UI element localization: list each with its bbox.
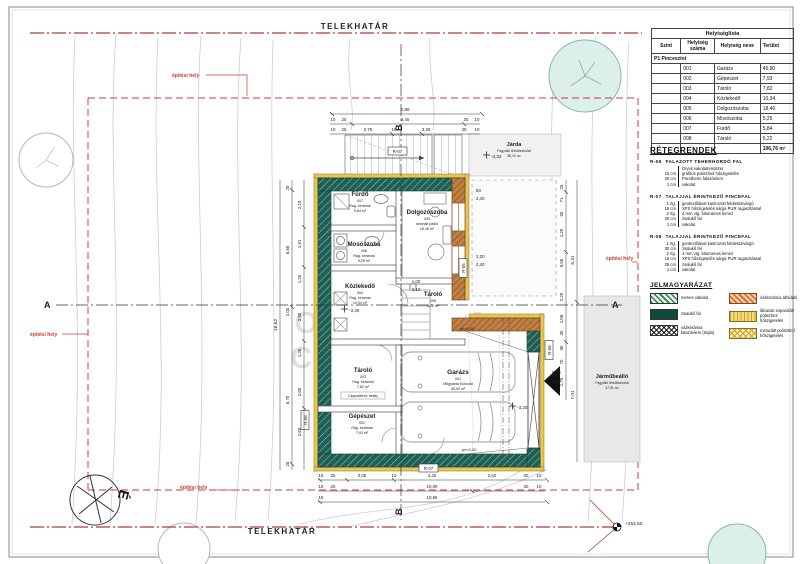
table-row: 008Tároló5,22 [652, 134, 794, 144]
svg-text:Gépészet: Gépészet [349, 414, 376, 420]
svg-text:15: 15 [319, 495, 324, 500]
table-row: 006Mosószoba5,25 [652, 114, 794, 124]
svg-text:+252,50: +252,50 [625, 521, 643, 527]
group-row: P1 Pinceszint [652, 54, 794, 64]
svg-text:Garázs: Garázs [447, 369, 469, 376]
col-header-terulet: Terület [760, 39, 793, 54]
legend-item: vázkerámia áthidaló [729, 293, 800, 304]
room-list-title: Helyiséglista [652, 29, 794, 39]
svg-text:45,90 m²: 45,90 m² [451, 387, 466, 391]
exterior-stair [345, 135, 462, 178]
legend-item: extrudált polisztirol hőszigetelés [729, 328, 800, 339]
svg-text:laminált padló: laminált padló [416, 222, 438, 226]
svg-text:Járda: Járda [507, 142, 523, 148]
svg-text:008: 008 [430, 299, 436, 303]
layer-name: TALAJJAL ÉRINTKEZŐ PINCEFAL [666, 234, 752, 239]
svg-text:2,60: 2,60 [297, 387, 302, 396]
svg-text:10: 10 [392, 473, 397, 478]
svg-text:1,20: 1,20 [559, 228, 564, 237]
svg-text:1,30: 1,30 [297, 348, 302, 357]
svg-text:R-06: R-06 [547, 345, 552, 355]
svg-text:6,96: 6,96 [400, 107, 410, 113]
svg-text:1,20: 1,20 [297, 274, 302, 283]
layer-code: R-07 [650, 194, 662, 199]
drawing-sheet: TELEKHATÁR TELEKHATÁR építési hely építé… [0, 0, 800, 564]
svg-text:10: 10 [537, 473, 542, 478]
svg-text:Csapadékvíz tartály: Csapadékvíz tartály [348, 394, 378, 398]
svg-text:B: B [394, 508, 404, 515]
svg-text:6,70: 6,70 [285, 395, 290, 404]
svg-text:004: 004 [357, 291, 363, 295]
svg-text:007: 007 [357, 199, 363, 203]
svg-text:25: 25 [342, 127, 347, 132]
svg-text:Közlekedő: Közlekedő [345, 284, 375, 290]
svg-text:10: 10 [475, 127, 480, 132]
svg-text:16,62: 16,62 [273, 319, 279, 331]
svg-text:A: A [44, 300, 51, 310]
layer-block-r07: R-07TALAJJAL ÉRINTKEZŐ PINCEFAL 1 rtg.ge… [650, 194, 798, 227]
svg-text:002: 002 [359, 421, 365, 425]
svg-text:Mosószoba: Mosószoba [348, 242, 381, 248]
legend-item: zsalukő fal [650, 309, 721, 320]
svg-text:építési hely: építési hely [180, 485, 207, 491]
svg-text:5,22 m²: 5,22 m² [427, 304, 440, 308]
svg-text:1,08: 1,08 [559, 314, 564, 323]
svg-text:2,40: 2,40 [476, 262, 485, 267]
svg-text:-3,20: -3,20 [517, 405, 528, 410]
svg-text:25: 25 [285, 461, 290, 466]
table-row: 007Fürdő5,84 [652, 124, 794, 134]
orange-hatch-swatch [729, 293, 757, 304]
svg-text:30: 30 [524, 473, 529, 478]
svg-text:2,20: 2,20 [559, 292, 564, 301]
col-header-szint: Szint [652, 39, 681, 54]
svg-text:70: 70 [559, 359, 564, 364]
table-row: 005Dolgozószoba18,46 [652, 104, 794, 114]
svg-text:2,00: 2,00 [285, 307, 290, 316]
svg-text:2,10: 2,10 [412, 287, 421, 292]
svg-text:10: 10 [537, 484, 542, 489]
tree-bottom [158, 523, 210, 564]
layer-name: TALAJJAL ÉRINTKEZŐ PINCEFAL [666, 194, 752, 199]
table-row: 003Tároló7,82 [652, 84, 794, 94]
svg-text:10: 10 [392, 127, 397, 132]
svg-text:25: 25 [342, 117, 347, 122]
svg-text:10: 10 [331, 117, 336, 122]
svg-text:15: 15 [319, 473, 324, 478]
layer-block-r06: R-06FALAZOTT TEHERHORDÓ FAL Dryvit vakol… [650, 159, 798, 187]
svg-text:Műgyanta burkolat: Műgyanta burkolat [443, 382, 473, 386]
layers-title: RÉTEGRENDEK [650, 146, 798, 155]
svg-text:Rag. kerámia: Rag. kerámia [349, 204, 370, 208]
svg-text:60: 60 [476, 188, 481, 193]
tree-top-right [549, 40, 621, 112]
svg-text:5,25 m²: 5,25 m² [358, 259, 371, 263]
svg-text:2,75: 2,75 [364, 127, 373, 132]
svg-text:4,25: 4,25 [428, 473, 437, 478]
legend-title: JELMAGYARÁZAT [650, 282, 800, 289]
svg-text:10,00: 10,00 [427, 484, 439, 489]
svg-text:25: 25 [331, 473, 336, 478]
tree-left [19, 133, 73, 187]
svg-text:47,91 m²: 47,91 m² [605, 386, 619, 390]
room-list-table: Helyiséglista Szint Helyiség száma Helyi… [651, 28, 794, 154]
svg-text:3,05: 3,05 [358, 473, 367, 478]
legend-item: nemes vakolat [650, 293, 721, 304]
svg-text:R-07: R-07 [393, 149, 403, 154]
svg-text:18,46 m²: 18,46 m² [420, 227, 435, 231]
svg-text:Tároló: Tároló [424, 292, 443, 298]
svg-text:1,00: 1,00 [412, 279, 421, 284]
svg-text:60: 60 [559, 211, 564, 216]
crosshatch-swatch [650, 325, 678, 336]
svg-text:2,60: 2,60 [488, 473, 497, 478]
svg-text:005: 005 [424, 217, 430, 221]
svg-text:Rag. kerámia: Rag. kerámia [353, 254, 374, 258]
svg-text:2,40: 2,40 [476, 196, 485, 201]
svg-text:38,10 m²: 38,10 m² [507, 154, 521, 158]
svg-text:Tároló: Tároló [354, 368, 373, 374]
svg-text:építési hely: építési hely [30, 332, 57, 338]
svg-text:6,50: 6,50 [285, 245, 290, 254]
svg-text:A: A [612, 300, 619, 310]
yellow-lines-swatch [729, 311, 757, 322]
north-symbol: É [70, 475, 133, 525]
svg-text:90: 90 [559, 345, 564, 350]
svg-text:7,82 m²: 7,82 m² [357, 385, 370, 389]
legend-item: lábazati expandált polisztirol hőszigete… [729, 309, 800, 323]
svg-text:Rag. kerámia: Rag. kerámia [351, 426, 372, 430]
svg-text:30: 30 [524, 484, 529, 489]
svg-text:3,30: 3,30 [422, 127, 431, 132]
svg-text:25: 25 [559, 184, 564, 189]
layer-block-r08: R-08TALAJJAL ÉRINTKEZŐ PINCEFAL 1 rtg.ge… [650, 234, 798, 272]
svg-text:10: 10 [331, 127, 336, 132]
layer-code: R-08 [650, 234, 662, 239]
teal-solid-swatch [650, 309, 678, 320]
svg-text:15: 15 [319, 484, 324, 489]
table-row: 001Garázs45,90 [652, 64, 794, 74]
svg-text:5,50: 5,50 [559, 258, 564, 267]
svg-text:1,91: 1,91 [297, 239, 302, 248]
svg-text:2,19: 2,19 [297, 200, 302, 209]
svg-text:Járműbeálló: Járműbeálló [596, 374, 629, 380]
svg-text:Fürdő: Fürdő [352, 192, 369, 198]
legend-item: vázkerámia falazóelem (tégla) [650, 325, 721, 336]
svg-text:2,20: 2,20 [476, 254, 485, 259]
svg-text:5,00: 5,00 [552, 370, 561, 375]
svg-text:Fagyálló térkőburkolat: Fagyálló térkőburkolat [595, 381, 628, 385]
svg-text:-3,30: -3,30 [349, 308, 360, 313]
svg-text:É: É [115, 488, 133, 501]
svg-text:10,34 m²: 10,34 m² [353, 301, 368, 305]
svg-text:6,31: 6,31 [570, 255, 576, 265]
svg-text:pm 0,00: pm 0,00 [462, 447, 477, 452]
svg-text:R-07: R-07 [424, 466, 434, 471]
svg-text:001: 001 [455, 377, 461, 381]
svg-text:5,84 m²: 5,84 m² [354, 209, 367, 213]
svg-text:30: 30 [464, 117, 469, 122]
svg-text:Rag. kerámia: Rag. kerámia [349, 296, 370, 300]
svg-text:006: 006 [361, 249, 367, 253]
legend: JELMAGYARÁZAT nemes vakolat zsalukő fal … [650, 282, 800, 339]
svg-text:2,90: 2,90 [297, 312, 302, 321]
svg-text:építési hely: építési hely [172, 73, 199, 79]
svg-text:2,60: 2,60 [297, 427, 302, 436]
survey-point: +252,50 [613, 521, 643, 531]
layer-code: R-06 [650, 159, 662, 164]
svg-text:30: 30 [462, 127, 467, 132]
svg-text:7,01: 7,01 [570, 390, 576, 400]
telekhatar-bottom-label: TELEKHATÁR [248, 527, 317, 536]
svg-text:2,40: 2,40 [552, 379, 561, 384]
svg-text:30: 30 [559, 330, 564, 335]
layer-structures: RÉTEGRENDEK R-06FALAZOTT TEHERHORDÓ FAL … [650, 146, 798, 279]
svg-text:Dolgozószoba: Dolgozószoba [407, 210, 448, 216]
svg-text:Fagyálló térkőburkolat: Fagyálló térkőburkolat [497, 149, 530, 153]
svg-text:10,65: 10,65 [427, 495, 439, 500]
svg-text:25: 25 [285, 185, 290, 190]
tree-bottom-right [708, 524, 766, 564]
svg-text:R-06: R-06 [461, 263, 466, 273]
table-row: 002Gépészet7,93 [652, 74, 794, 84]
svg-text:71: 71 [559, 197, 564, 202]
col-header-neve: Helyiség neve [715, 39, 761, 54]
svg-text:25: 25 [331, 484, 336, 489]
col-header-szama: Helyiség száma [681, 39, 715, 54]
svg-text:pm 0,00: pm 0,00 [460, 326, 475, 331]
layer-name: FALAZOTT TEHERHORDÓ FAL [666, 159, 743, 164]
jarda-area [469, 134, 561, 296]
svg-text:003: 003 [360, 375, 366, 379]
green-hatch-swatch [650, 293, 678, 304]
svg-text:7,93 m²: 7,93 m² [356, 431, 369, 435]
yellow-cross-swatch [729, 328, 757, 339]
svg-text:építési hely: építési hely [606, 256, 633, 262]
svg-text:-3,32: -3,32 [491, 154, 502, 159]
telekhatar-top-label: TELEKHATÁR [321, 22, 390, 31]
table-row: 004Közlekedő10,34 [652, 94, 794, 104]
svg-text:Rag. kerámia: Rag. kerámia [352, 380, 373, 384]
svg-text:6,45: 6,45 [401, 117, 410, 122]
svg-text:10: 10 [475, 117, 480, 122]
